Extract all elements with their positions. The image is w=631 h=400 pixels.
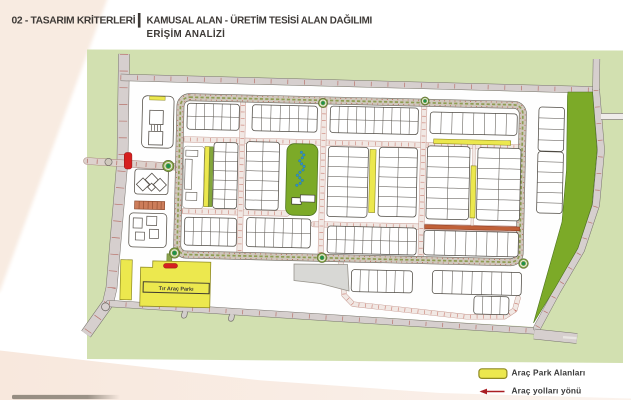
svg-text:KAMUSAL ALAN - ÜRETİM TESİSİ A: KAMUSAL ALAN - ÜRETİM TESİSİ ALAN DAĞILI… [147, 14, 373, 26]
svg-text:Araç Park Alanları: Araç Park Alanları [512, 368, 586, 378]
svg-text:Araç yolları yönü: Araç yolları yönü [512, 386, 582, 396]
svg-text:02 - TASARIM KRİTERLERİ: 02 - TASARIM KRİTERLERİ [12, 13, 136, 26]
svg-text:Tır Araç Parkı: Tır Araç Parkı [159, 286, 194, 293]
svg-text:ERİŞİM ANALİZİ: ERİŞİM ANALİZİ [147, 29, 226, 40]
